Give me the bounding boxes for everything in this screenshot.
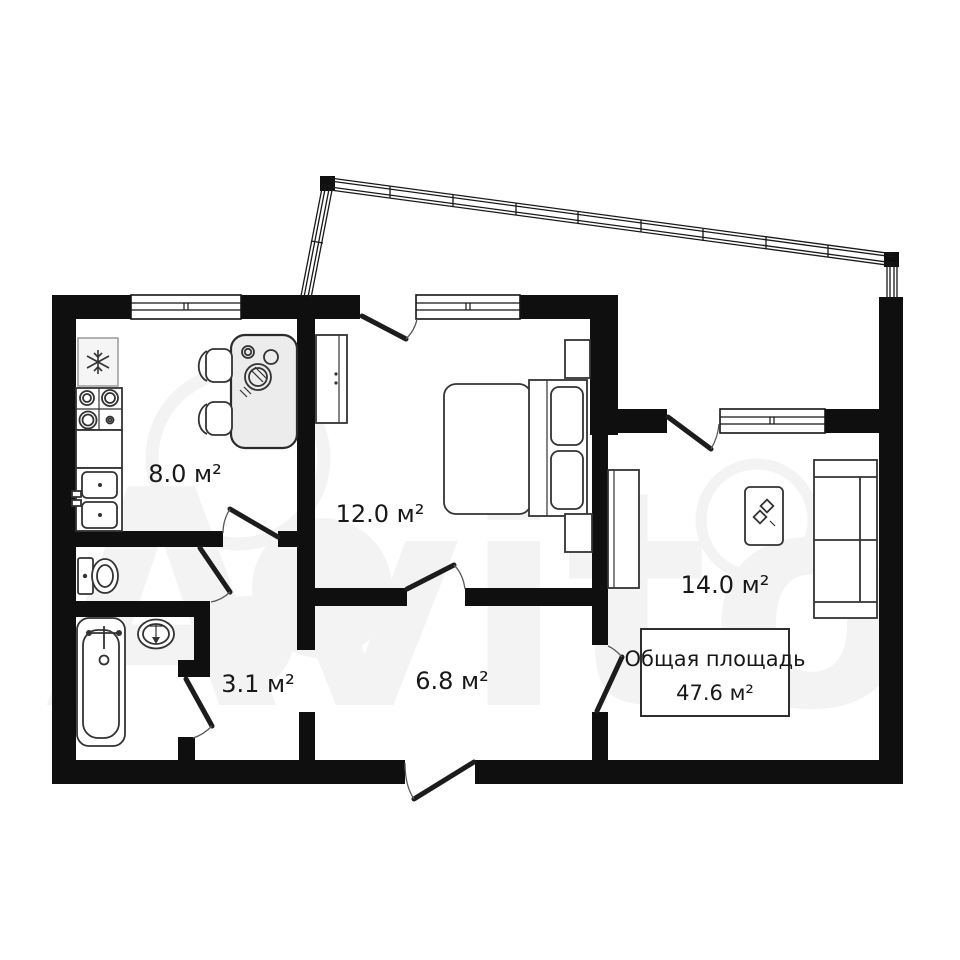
bathroom-hall-area-label: 3.1 м² [221, 670, 295, 698]
wall-kitchen-bottom [76, 531, 223, 547]
washbasin [138, 620, 174, 649]
faucet-icon [72, 491, 81, 497]
toilet [78, 558, 118, 594]
total-area-title: Общая площадь [625, 647, 806, 671]
total-area-value: 47.6 м² [676, 681, 754, 705]
dining-table [231, 335, 297, 448]
wall-outer-right [879, 297, 903, 784]
total-area-box: Общая площадь 47.6 м² [625, 629, 806, 716]
sofa [814, 460, 877, 618]
kitchen-counter [76, 430, 122, 468]
wall-kitchen-door-stub [278, 531, 297, 547]
wall-hall-living-divider-lower [592, 712, 608, 760]
kitchen-area-label: 8.0 м² [148, 460, 222, 488]
wall-hall-stub [299, 712, 315, 760]
coffee-table [745, 487, 783, 545]
kitchen-sink [72, 468, 122, 531]
floor-plan: Avito [0, 0, 960, 960]
bathtub [77, 618, 125, 746]
wall-bedroom-bottom-left [297, 588, 407, 606]
balcony-glazing [301, 176, 899, 299]
opening-bedroom-door [360, 295, 417, 319]
nightstand [565, 340, 590, 378]
wall-bath-right-lower [178, 737, 195, 760]
kitchen-window [131, 295, 241, 319]
wall-bath-step [178, 660, 210, 677]
bedroom-window [416, 295, 520, 319]
fridge [78, 338, 118, 386]
wall-bedroom-bottom-right [465, 588, 608, 606]
nightstand [565, 514, 592, 552]
wall-outer-left [52, 295, 76, 784]
wall-hall-living-divider [592, 433, 608, 645]
bedroom-door [362, 316, 417, 339]
pillow [551, 451, 583, 509]
living-room-area-label: 14.0 м² [681, 571, 770, 599]
living-window [720, 409, 825, 433]
wall-outer-bottom [52, 760, 903, 784]
hallway-area-label: 6.8 м² [415, 667, 489, 695]
double-bed [444, 380, 587, 516]
cabinet [608, 470, 639, 588]
wall-toilet-bottom [76, 601, 210, 617]
bedroom-area-label: 12.0 м² [336, 500, 425, 528]
pillow [551, 387, 583, 445]
wardrobe [316, 335, 347, 423]
wall-bath-right-upper [194, 617, 210, 662]
stove [76, 388, 122, 430]
